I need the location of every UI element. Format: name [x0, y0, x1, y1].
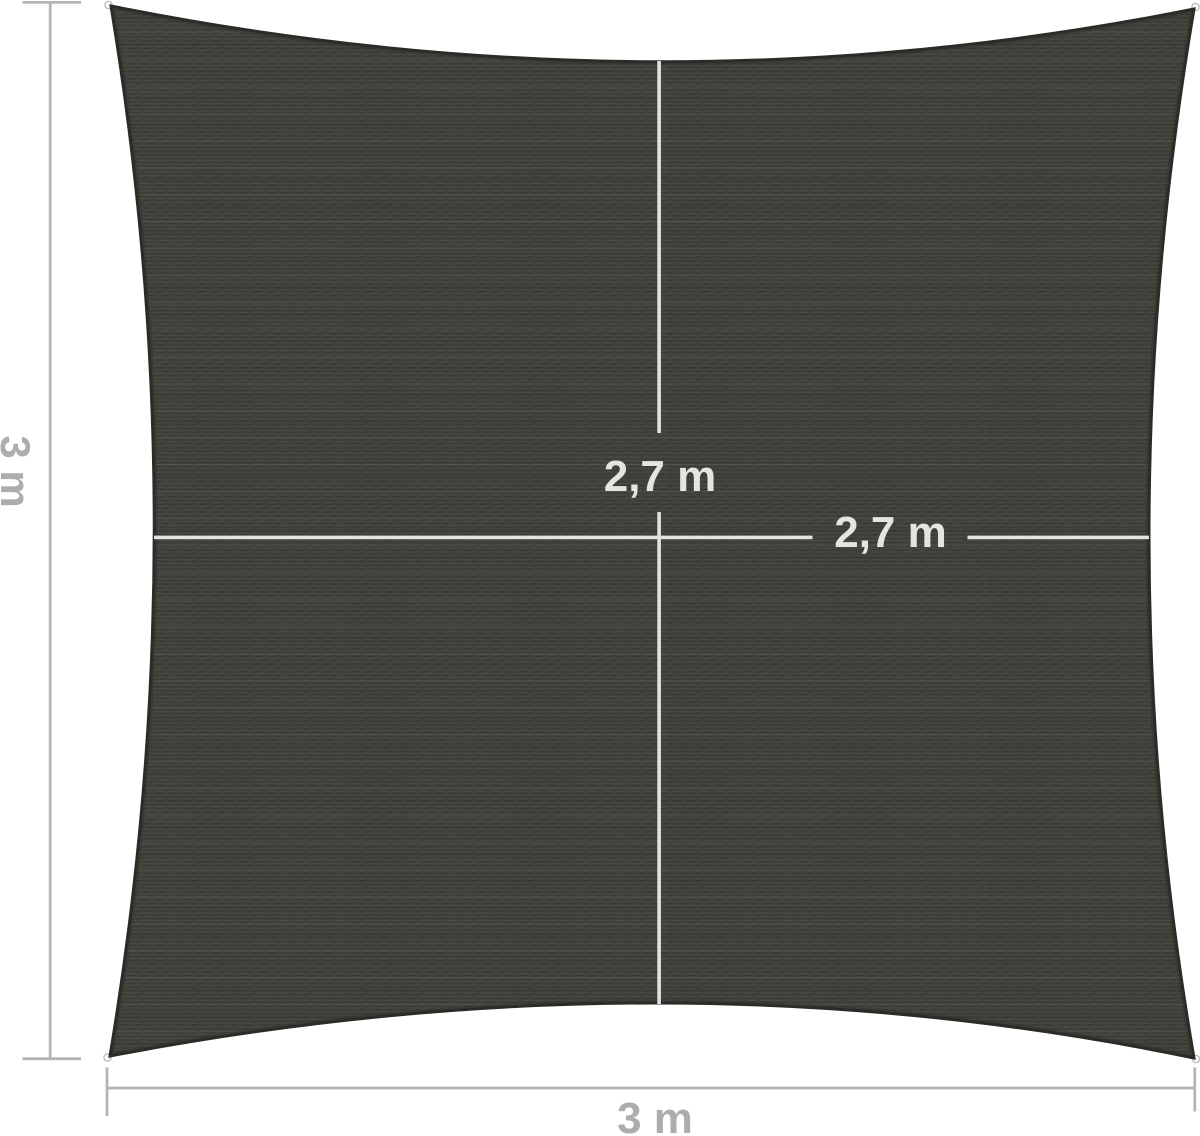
svg-text:3 m: 3 m — [617, 1094, 693, 1136]
svg-text:2,7 m: 2,7 m — [604, 452, 717, 501]
svg-text:3 m: 3 m — [0, 435, 39, 507]
svg-text:2,7 m: 2,7 m — [834, 508, 947, 557]
